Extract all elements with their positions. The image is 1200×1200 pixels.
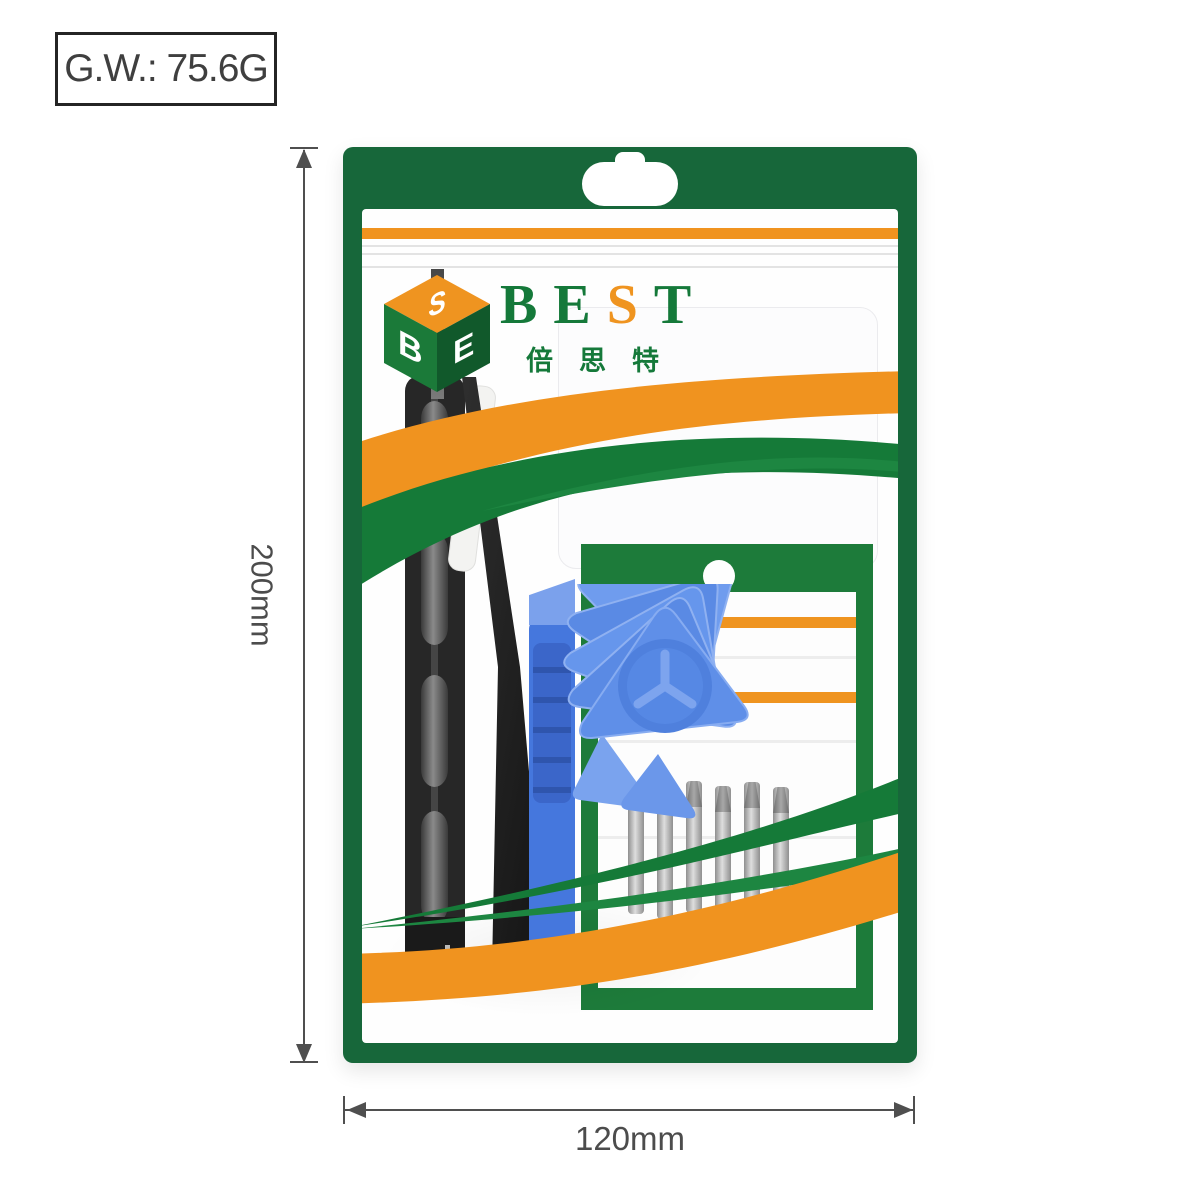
screwdriver-print-mark bbox=[445, 945, 450, 961]
width-dimension-line bbox=[345, 1109, 915, 1111]
triangle-picks bbox=[562, 584, 862, 834]
brand-letter-s: S bbox=[607, 274, 654, 336]
screwdriver-grip-bulge bbox=[421, 811, 448, 923]
brand-letter: E bbox=[553, 274, 606, 336]
brand-logo-cube: S B E bbox=[384, 275, 490, 393]
screwdriver-end-cap bbox=[405, 917, 465, 975]
cube-letter-top: S bbox=[426, 282, 447, 325]
arrow-right-icon bbox=[894, 1102, 913, 1118]
cube-letter-right: E bbox=[453, 324, 474, 372]
brand-chinese: 倍思特 bbox=[526, 339, 685, 378]
zipper-orange-stripe bbox=[362, 228, 898, 239]
weight-label: G.W.: 75.6G bbox=[64, 47, 268, 91]
brand-letter: B bbox=[500, 274, 553, 336]
zipper-line bbox=[362, 253, 898, 255]
width-dimension-label: 120mm bbox=[345, 1120, 915, 1158]
arrow-up-icon bbox=[296, 149, 312, 168]
screwdriver-grip-bulge bbox=[421, 533, 448, 645]
tool-kit-bag: S B E BEST 倍思特 bbox=[343, 147, 917, 1063]
brand-wordmark: BEST bbox=[500, 273, 707, 337]
zipper-line bbox=[362, 245, 898, 247]
brand-letter: T bbox=[654, 274, 707, 336]
zipper-line bbox=[362, 266, 898, 268]
weight-label-box: G.W.: 75.6G bbox=[55, 32, 277, 106]
arrow-down-icon bbox=[296, 1044, 312, 1063]
screwdriver-grip-bulge bbox=[421, 675, 448, 787]
arrow-left-icon bbox=[347, 1102, 366, 1118]
height-dimension-label: 200mm bbox=[244, 543, 280, 646]
screwdriver bbox=[405, 375, 465, 975]
cube-letter-left: B bbox=[398, 322, 423, 374]
bag-front-panel: S B E BEST 倍思特 bbox=[362, 209, 898, 1043]
screwdriver-grip-bulge bbox=[421, 401, 448, 513]
height-dimension-line bbox=[303, 150, 305, 1062]
brand-logo-block: S B E BEST 倍思特 bbox=[378, 271, 778, 401]
height-dimension-label-wrap: 200mm bbox=[240, 520, 284, 670]
product-photo-stage: G.W.: 75.6G 200mm 120mm bbox=[0, 0, 1200, 1200]
euro-hang-slot-icon bbox=[582, 162, 678, 206]
